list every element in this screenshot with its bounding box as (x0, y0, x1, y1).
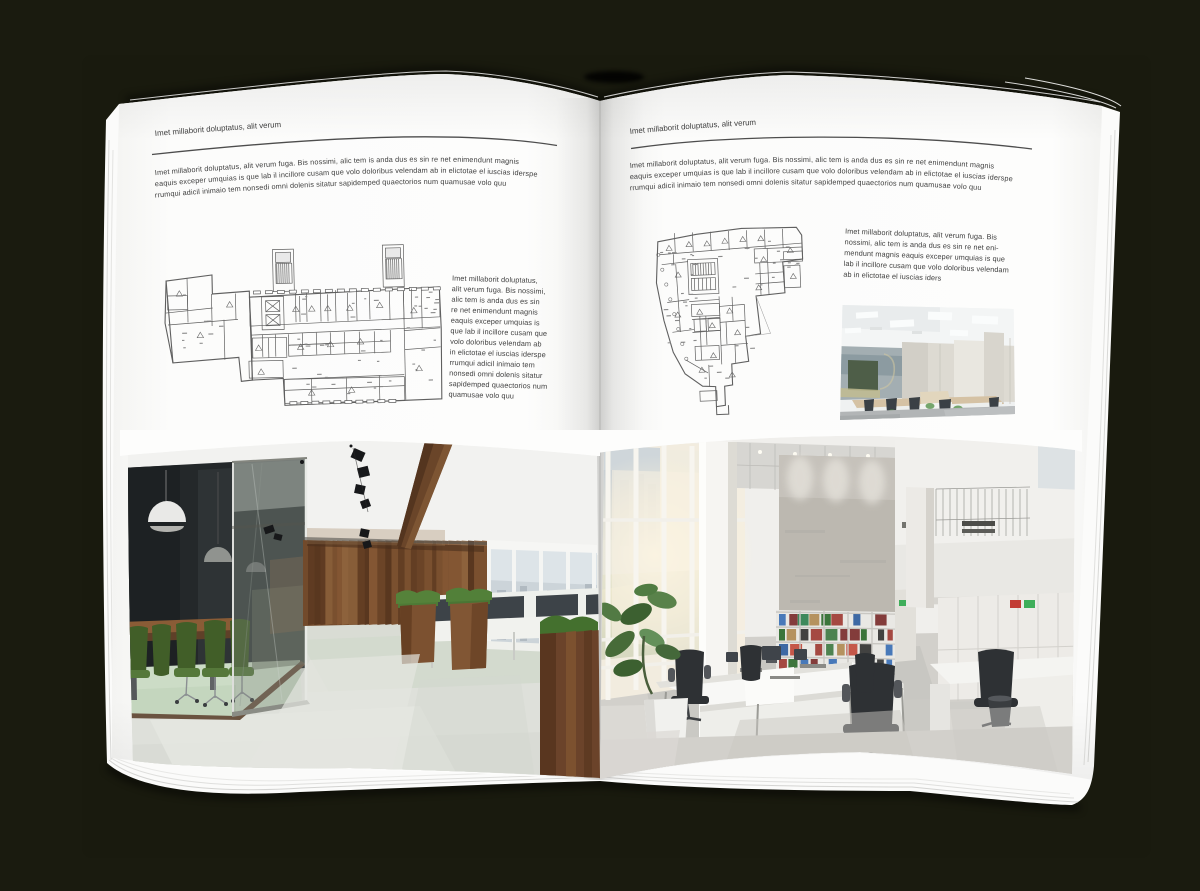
svg-text:Imet millaborit doluptatus,ali: Imet millaborit doluptatus,alit verum fu… (448, 274, 550, 402)
